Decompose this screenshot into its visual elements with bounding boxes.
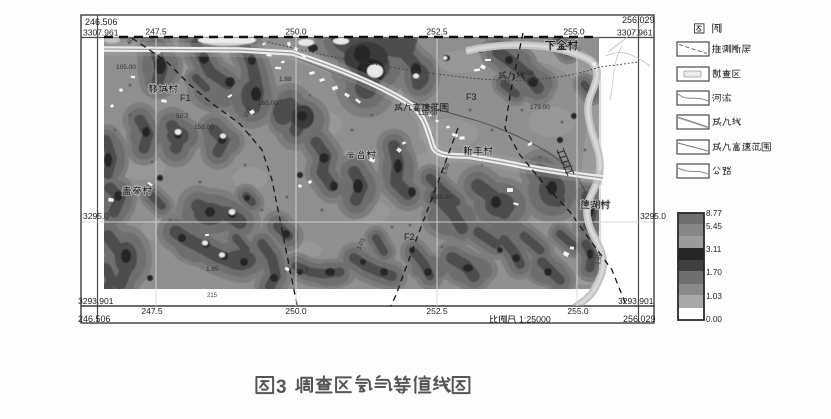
svg-text:8.77: 8.77 xyxy=(706,209,722,218)
svg-text:3295.0: 3295.0 xyxy=(83,211,109,221)
svg-text:3: 3 xyxy=(276,377,287,398)
svg-text:255.0: 255.0 xyxy=(563,27,585,37)
svg-text:50.7: 50.7 xyxy=(296,268,309,275)
svg-text:F3: F3 xyxy=(466,92,477,102)
svg-text:0.00: 0.00 xyxy=(706,315,722,324)
svg-text:246.506: 246.506 xyxy=(78,314,111,324)
svg-text:1.65: 1.65 xyxy=(206,266,219,273)
svg-text:F2: F2 xyxy=(404,232,415,242)
svg-text:165.00: 165.00 xyxy=(258,100,278,107)
svg-text:3295.0: 3295.0 xyxy=(640,211,666,221)
svg-text:1:25000: 1:25000 xyxy=(519,315,551,325)
svg-text:1.70: 1.70 xyxy=(706,268,722,277)
svg-text:252.5: 252.5 xyxy=(426,27,448,37)
svg-text:256.029: 256.029 xyxy=(622,15,655,25)
svg-text:247.5: 247.5 xyxy=(145,27,167,37)
svg-text:250.0: 250.0 xyxy=(285,306,307,316)
svg-text:189.00: 189.00 xyxy=(432,194,452,201)
svg-text:1.09: 1.09 xyxy=(521,70,534,77)
svg-text:255.0: 255.0 xyxy=(567,306,589,316)
svg-text:247.5: 247.5 xyxy=(141,306,163,316)
svg-text:179.00: 179.00 xyxy=(530,104,550,111)
svg-text:1.03: 1.03 xyxy=(706,292,722,301)
svg-text:3293.901: 3293.901 xyxy=(618,296,654,306)
svg-text:3293.901: 3293.901 xyxy=(78,296,114,306)
svg-text:3307.961: 3307.961 xyxy=(617,28,653,38)
svg-text:105.00: 105.00 xyxy=(116,64,136,71)
svg-text:256.029: 256.029 xyxy=(623,314,656,324)
svg-text:115.00: 115.00 xyxy=(418,110,438,117)
svg-text:F1: F1 xyxy=(180,93,191,103)
svg-text:50.7: 50.7 xyxy=(176,113,189,120)
svg-text:3.11: 3.11 xyxy=(706,245,722,254)
svg-text:5.45: 5.45 xyxy=(706,222,722,231)
svg-text:3307.961: 3307.961 xyxy=(83,28,119,38)
svg-text:158.00: 158.00 xyxy=(194,124,214,131)
svg-text:215: 215 xyxy=(207,293,218,299)
svg-text:1.68: 1.68 xyxy=(279,76,292,83)
svg-text:250.0: 250.0 xyxy=(285,27,307,37)
svg-text:246.506: 246.506 xyxy=(85,17,118,27)
svg-text:252.5: 252.5 xyxy=(426,306,448,316)
